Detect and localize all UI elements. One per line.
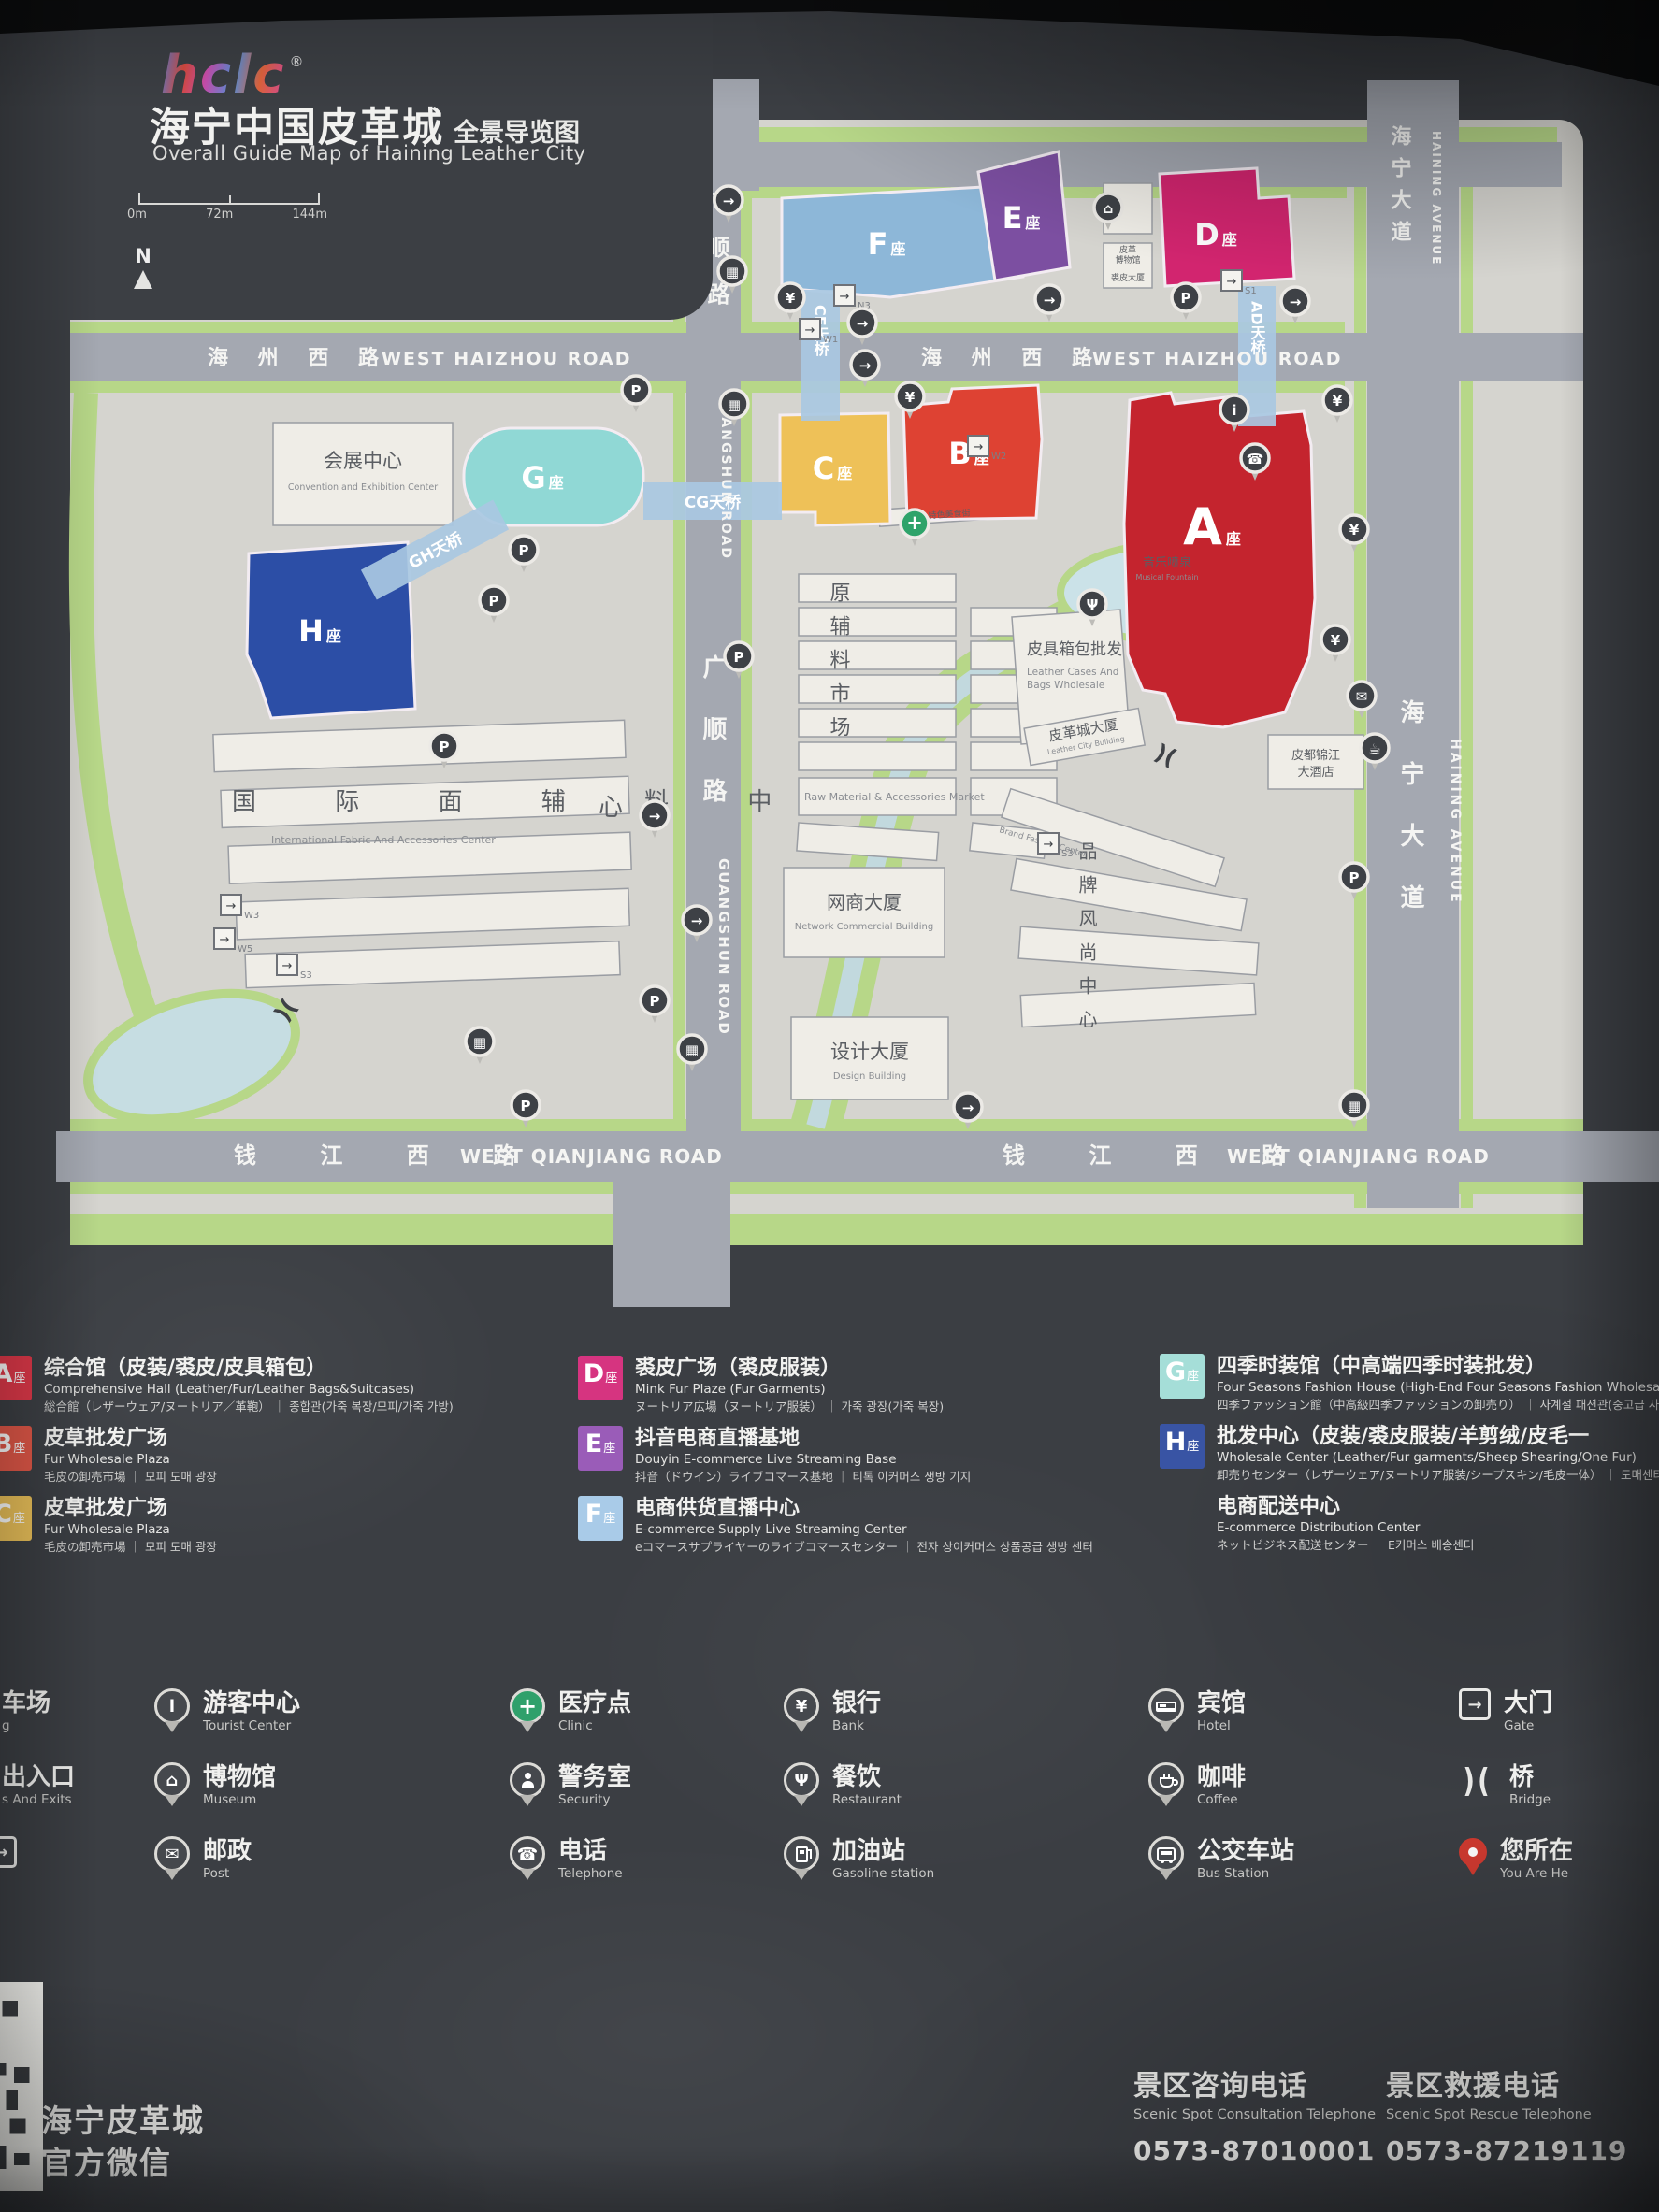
legend-building-suffix: 座 xyxy=(603,1438,615,1456)
svg-text:→: → xyxy=(857,315,869,332)
svg-text:→: → xyxy=(859,357,872,374)
legend-title-jp-kr: 抖音（ドウイン）ライブコマース基地 ｜ 티톡 이커머스 생방 기지 xyxy=(635,1469,971,1486)
legend-column-1: A座 综合馆（皮装/裘皮/皮具箱包） Comprehensive Hall (L… xyxy=(0,1356,660,1566)
facility-label-zh: 咖啡 xyxy=(1197,1763,1246,1791)
facility-item: 加油站 Gasoline station xyxy=(784,1836,934,1885)
legend-building-suffix: 座 xyxy=(603,1508,615,1526)
north-label: N xyxy=(135,245,151,267)
legend-building-letter: C xyxy=(0,1501,12,1529)
facility-label-en: Museum xyxy=(203,1791,276,1808)
svg-text:大酒店: 大酒店 xyxy=(1297,766,1334,780)
restaurant-pin-icon: Ψ xyxy=(784,1762,819,1798)
scale-tick: 72m xyxy=(206,208,233,222)
legend-building-square: C座 xyxy=(0,1496,32,1541)
legend-title-en: E-commerce Supply Live Streaming Center xyxy=(635,1521,1093,1539)
svg-text:▦: ▦ xyxy=(1348,1098,1361,1114)
legend-title-zh: 皮草批发广场 xyxy=(44,1496,217,1521)
facility-item: → xyxy=(2,1836,75,1885)
facility-label-en: Bridge xyxy=(1509,1791,1551,1808)
svg-text:Ψ: Ψ xyxy=(1087,596,1099,613)
svg-text:→: → xyxy=(723,193,735,209)
svg-text:→: → xyxy=(691,912,703,929)
svg-text:▦: ▦ xyxy=(728,396,741,413)
gas-pin-icon xyxy=(784,1836,819,1872)
building-C xyxy=(780,413,890,525)
facility-label-zh: 您所在 xyxy=(1500,1837,1573,1865)
rescue-phone-block: 景区救援电话 Scenic Spot Rescue Telephone 0573… xyxy=(1386,2062,1659,2166)
svg-text:→: → xyxy=(805,323,815,338)
facility-label-en: Gasoline station xyxy=(832,1865,934,1882)
svg-text:Bags Wholesale: Bags Wholesale xyxy=(1027,680,1104,691)
guide-map-sign: F座 E座 D座 C座 B座 A座 G座 H座 CF天桥 AD天桥 CG天桥 G… xyxy=(0,0,1659,2212)
legend-building-square: D座 xyxy=(578,1356,623,1400)
legend-building-letter: D xyxy=(584,1360,604,1388)
facility-item: 出入口 s And Exits xyxy=(2,1762,75,1811)
facility-label-zh: 博物馆 xyxy=(203,1763,276,1791)
svg-text:→: → xyxy=(1290,294,1302,310)
svg-text:→: → xyxy=(840,290,850,304)
north-arrow: N xyxy=(131,245,155,289)
svg-text:W1: W1 xyxy=(823,335,838,345)
gate-icon: → xyxy=(1459,1688,1491,1720)
svg-text:网商大厦: 网商大厦 xyxy=(827,891,902,913)
svg-text:→: → xyxy=(1044,838,1054,852)
legend-title-en: Comprehensive Hall (Leather/Fur/Leather … xyxy=(44,1381,454,1399)
svg-text:会展中心: 会展中心 xyxy=(324,450,402,472)
facility-column-1: i 游客中心 Tourist Center ⌂ 博物馆 Museum ✉ 邮政 … xyxy=(154,1688,300,1910)
svg-text:皮都锦江: 皮都锦江 xyxy=(1291,749,1340,763)
legend-entry: B座 皮草批发广场 Fur Wholesale Plaza 毛皮の卸売市場 ｜ … xyxy=(0,1426,660,1486)
facility-label-zh: 餐饮 xyxy=(832,1763,902,1791)
svg-text:P: P xyxy=(1349,869,1360,886)
museum-pin-icon: ⌂ xyxy=(154,1762,190,1798)
legend-entry: 电商配送中心 E-commerce Distribution Center ネッ… xyxy=(1160,1494,1659,1554)
facility-label-en: Hotel xyxy=(1197,1717,1246,1734)
legend-building-square: B座 xyxy=(0,1426,32,1471)
legend-title-en: Fur Wholesale Plaza xyxy=(44,1451,217,1469)
legend-building-suffix: 座 xyxy=(605,1368,617,1386)
legend-title-jp-kr: ネットビジネス配送センター ｜ E커머스 배송센터 xyxy=(1217,1537,1474,1554)
facility-label-en: s And Exits xyxy=(2,1791,75,1808)
svg-text:皮革: 皮革 xyxy=(1119,244,1136,255)
legend-building-suffix: 座 xyxy=(13,1368,25,1386)
facility-label-zh: 加油站 xyxy=(832,1837,934,1865)
svg-text:WEST QIANJIANG ROAD: WEST QIANJIANG ROAD xyxy=(1227,1145,1490,1168)
legend-building-suffix: 座 xyxy=(13,1438,25,1456)
svg-text:原辅料市场: 原辅料市场 xyxy=(827,582,851,750)
legend-building-square: G座 xyxy=(1160,1354,1205,1399)
facility-item: 您所在 You Are He xyxy=(1459,1836,1573,1885)
svg-text:▦: ▦ xyxy=(473,1034,486,1051)
svg-text:设计大厦: 设计大厦 xyxy=(830,1041,909,1063)
svg-text:Leather Cases And: Leather Cases And xyxy=(1027,667,1118,678)
facility-item: i 游客中心 Tourist Center xyxy=(154,1688,300,1737)
svg-text:¥: ¥ xyxy=(905,389,916,406)
facility-label-zh: 警务室 xyxy=(558,1763,631,1791)
svg-text:P: P xyxy=(440,739,450,755)
legend-building-letter: G xyxy=(1165,1358,1186,1386)
svg-text:心: 心 xyxy=(599,794,623,822)
svg-text:品牌风尚中心: 品牌风尚中心 xyxy=(1075,841,1098,1043)
scale-tick: 144m xyxy=(293,208,327,222)
svg-text:GUANGSHUN ROAD: GUANGSHUN ROAD xyxy=(715,858,732,1036)
legend-building-letter: B xyxy=(0,1430,12,1458)
svg-text:Convention and Exhibition Cent: Convention and Exhibition Center xyxy=(288,482,438,493)
svg-text:P: P xyxy=(489,593,499,610)
clinic-pin-icon: + xyxy=(510,1688,545,1724)
facility-item: → 大门 Gate xyxy=(1459,1688,1573,1737)
svg-text:WEST HAIZHOU ROAD: WEST HAIZHOU ROAD xyxy=(382,349,632,369)
svg-text:☎: ☎ xyxy=(1247,451,1264,467)
legend-building-letter: A xyxy=(0,1360,12,1388)
phone-pin-icon: ☎ xyxy=(510,1836,545,1872)
svg-text:i: i xyxy=(1232,402,1236,419)
facility-label-zh: 桥 xyxy=(1509,1763,1551,1791)
facility-column-left-cut: 车场 g 出入口 s And Exits → xyxy=(2,1688,75,1910)
registered-mark: ® xyxy=(289,53,303,70)
facility-column-4: 宾馆 Hotel 咖啡 Coffee 公交车站 Bus Station xyxy=(1148,1688,1294,1910)
you-are-here-pin-icon xyxy=(1459,1838,1487,1866)
hotel-pin-icon xyxy=(1148,1688,1184,1724)
facility-item: + 医疗点 Clinic xyxy=(510,1688,631,1737)
legend-title-jp-kr: 毛皮の卸売市場 ｜ 모피 도매 광장 xyxy=(44,1539,217,1556)
legend-building-letter: E xyxy=(585,1430,602,1458)
legend-title-zh: 批发中心（皮装/裘皮服装/羊剪绒/皮毛一 xyxy=(1217,1424,1659,1449)
svg-text:→: → xyxy=(974,440,984,454)
legend-title-jp-kr: 総合館（レザーウェア/ヌートリア／革鞄） ｜ 종합관(가죽 복장/모피/가죽 가… xyxy=(44,1399,454,1415)
legend-title-zh: 皮草批发广场 xyxy=(44,1426,217,1451)
facility-item: 宾馆 Hotel xyxy=(1148,1688,1294,1737)
svg-text:WEST HAIZHOU ROAD: WEST HAIZHOU ROAD xyxy=(1092,349,1343,369)
legend-building-suffix: 座 xyxy=(1187,1436,1199,1454)
svg-text:S1: S1 xyxy=(1245,286,1257,296)
building-E xyxy=(978,151,1070,280)
svg-text:W3: W3 xyxy=(244,911,259,921)
legend-title-en: Fur Wholesale Plaza xyxy=(44,1521,217,1539)
svg-text:AD天桥: AD天桥 xyxy=(1248,301,1266,356)
facility-item: )( 桥 Bridge xyxy=(1459,1762,1573,1811)
svg-text:W5: W5 xyxy=(238,944,252,955)
facility-label-en: g xyxy=(2,1717,50,1734)
facility-item: ☎ 电话 Telephone xyxy=(510,1836,631,1885)
facility-column-right-cut: → 大门 Gate )( 桥 Bridge 您所在 You Are He xyxy=(1459,1688,1573,1910)
facility-item: ⌂ 博物馆 Museum xyxy=(154,1762,300,1811)
svg-text:P: P xyxy=(631,382,642,399)
scale-tick: 0m xyxy=(127,208,147,222)
facility-item: ¥ 银行 Bank xyxy=(784,1688,934,1737)
facility-label-en: You Are He xyxy=(1500,1865,1573,1882)
info-pin-icon: i xyxy=(154,1688,190,1724)
legend-title-zh: 综合馆（皮装/裘皮/皮具箱包） xyxy=(44,1356,454,1381)
bus-pin-icon xyxy=(1148,1836,1184,1872)
rescue-phone-number: 0573-87219119 xyxy=(1386,2135,1659,2166)
facility-label-en: Gate xyxy=(1504,1717,1552,1734)
legend-title-zh: 抖音电商直播基地 xyxy=(635,1426,971,1451)
facility-label-zh: 电话 xyxy=(558,1837,623,1865)
legend-building-suffix: 座 xyxy=(13,1508,25,1526)
legend-building-suffix: 座 xyxy=(1187,1366,1199,1384)
facility-item: 警务室 Security xyxy=(510,1762,631,1811)
wechat-caption: 海宁皮革城 官方微信 xyxy=(41,2100,205,2184)
svg-text:✉: ✉ xyxy=(1356,688,1368,705)
legend-entry: D座 裘皮广场（裘皮服装） Mink Fur Plaze (Fur Garmen… xyxy=(578,1356,1251,1415)
svg-text:HAINING AVENUE: HAINING AVENUE xyxy=(1430,131,1443,266)
facility-column-3: ¥ 银行 Bank Ψ 餐饮 Restaurant 加油站 Gasoline s… xyxy=(784,1688,934,1910)
legend-entry: F座 电商供货直播中心 E-commerce Supply Live Strea… xyxy=(578,1496,1251,1556)
facility-label-en: Bus Station xyxy=(1197,1865,1294,1882)
svg-text:P: P xyxy=(521,1098,531,1114)
wechat-caption-line2: 官方微信 xyxy=(41,2145,172,2181)
facility-column-2: + 医疗点 Clinic 警务室 Security ☎ 电话 Telephone xyxy=(510,1688,631,1910)
legend-building-letter: F xyxy=(585,1501,602,1529)
svg-text:¥: ¥ xyxy=(1331,632,1341,649)
svg-text:▦: ▦ xyxy=(685,1041,699,1058)
legend-title-jp-kr: 毛皮の卸売市場 ｜ 모피 도매 광장 xyxy=(44,1469,217,1486)
coffee-pin-icon xyxy=(1148,1762,1184,1798)
wechat-qr-code xyxy=(0,1982,43,2191)
legend-building-square: E座 xyxy=(578,1426,623,1471)
legend-title-zh: 电商配送中心 xyxy=(1217,1494,1474,1519)
north-triangle-icon xyxy=(134,270,152,289)
legend-entry: C座 皮草批发广场 Fur Wholesale Plaza 毛皮の卸売市場 ｜ … xyxy=(0,1496,660,1556)
legend-column-2: D座 裘皮广场（裘皮服装） Mink Fur Plaze (Fur Garmen… xyxy=(578,1356,1251,1566)
svg-text:S3: S3 xyxy=(1061,849,1074,859)
facility-item: 咖啡 Coffee xyxy=(1148,1762,1294,1811)
svg-text:→: → xyxy=(226,899,237,913)
legend-entry: A座 综合馆（皮装/裘皮/皮具箱包） Comprehensive Hall (L… xyxy=(0,1356,660,1415)
post-pin-icon: ✉ xyxy=(154,1836,190,1872)
svg-text:Raw Material & Accessories Mar: Raw Material & Accessories Market xyxy=(804,791,985,803)
legend-entry: H座 批发中心（皮装/裘皮服装/羊剪绒/皮毛一 Wholesale Center… xyxy=(1160,1424,1659,1484)
scale-line xyxy=(138,193,320,205)
svg-text:Design Building: Design Building xyxy=(833,1071,906,1082)
facility-label-zh: 游客中心 xyxy=(203,1689,300,1717)
legend-title-jp-kr: eコマースサプライヤーのライブコマースセンター ｜ 전자 상이커머스 상품공급 … xyxy=(635,1539,1093,1556)
facility-item: ✉ 邮政 Post xyxy=(154,1836,300,1885)
legend-title-en: Mink Fur Plaze (Fur Garments) xyxy=(635,1381,944,1399)
rescue-phone-subtitle: Scenic Spot Rescue Telephone xyxy=(1386,2107,1659,2122)
svg-text:广顺路: 广顺路 xyxy=(699,654,727,840)
facility-label-zh: 公交车站 xyxy=(1197,1837,1294,1865)
legend-title-zh: 电商供货直播中心 xyxy=(635,1496,1093,1521)
legend-title-jp-kr: 卸売りセンター（レザーウェア/ヌートリア服装/シープスキン/毛皮一体） ｜ 도매… xyxy=(1217,1467,1659,1484)
svg-text:P: P xyxy=(734,649,744,666)
svg-text:裘皮大厦: 裘皮大厦 xyxy=(1111,272,1145,283)
title-english: Overall Guide Map of Haining Leather Cit… xyxy=(152,142,585,165)
legend-entry: G座 四季时装馆（中高端四季时装批发） Four Seasons Fashion… xyxy=(1160,1354,1659,1414)
map-scale-bar: 0m 72m 144m xyxy=(138,193,335,222)
svg-text:→: → xyxy=(1227,275,1237,289)
svg-text:¥: ¥ xyxy=(1349,522,1360,539)
svg-text:P: P xyxy=(519,542,529,559)
legend-building-square: H座 xyxy=(1160,1424,1205,1469)
svg-text:Musical Fountain: Musical Fountain xyxy=(1135,573,1198,582)
legend-building-square: F座 xyxy=(578,1496,623,1541)
facility-label-en: Security xyxy=(558,1791,631,1808)
legend-building-square: A座 xyxy=(0,1356,32,1400)
facility-label-en: Telephone xyxy=(558,1865,623,1882)
svg-text:HAINING AVENUE: HAINING AVENUE xyxy=(1448,739,1463,905)
svg-text:¥: ¥ xyxy=(1333,393,1343,409)
svg-text:¥: ¥ xyxy=(786,290,796,307)
facility-item: Ψ 餐饮 Restaurant xyxy=(784,1762,934,1811)
svg-text:⌂: ⌂ xyxy=(1104,200,1114,217)
security-pin-icon xyxy=(510,1762,545,1798)
svg-text:S3: S3 xyxy=(300,970,312,981)
facility-label-zh: 邮政 xyxy=(203,1837,252,1865)
legend-title-en: Wholesale Center (Leather/Fur garments/S… xyxy=(1217,1449,1659,1467)
svg-text:→: → xyxy=(282,959,293,973)
svg-text:海宁大道: 海宁大道 xyxy=(1388,124,1412,252)
facility-label-zh: 大门 xyxy=(1504,1689,1552,1717)
svg-text:→: → xyxy=(220,933,230,947)
legend-title-jp-kr: ヌートリア広場（ヌートリア服装） ｜ 가죽 광장(가죽 복장) xyxy=(635,1399,944,1415)
svg-text:P: P xyxy=(1181,290,1191,307)
rescue-phone-title: 景区救援电话 xyxy=(1386,2062,1659,2104)
svg-text:→: → xyxy=(1044,292,1056,309)
legend-building-letter: H xyxy=(1165,1429,1187,1457)
facility-label-zh: 出入口 xyxy=(2,1763,75,1791)
facility-label-zh: 宾馆 xyxy=(1197,1689,1246,1717)
legend-column-3: G座 四季时装馆（中高端四季时装批发） Four Seasons Fashion… xyxy=(1160,1354,1659,1564)
legend-title-zh: 裘皮广场（裘皮服装） xyxy=(635,1356,944,1381)
svg-text:皮具箱包批发: 皮具箱包批发 xyxy=(1027,640,1122,659)
facility-label-en: Restaurant xyxy=(832,1791,902,1808)
bank-pin-icon: ¥ xyxy=(784,1688,819,1724)
svg-text:海 州 西 路: 海 州 西 路 xyxy=(921,346,1104,370)
svg-text:博物馆: 博物馆 xyxy=(1115,254,1140,266)
facility-label-zh: 银行 xyxy=(832,1689,881,1717)
qr-pattern xyxy=(0,1988,37,2186)
facility-label-en: Tourist Center xyxy=(203,1717,300,1734)
wechat-caption-line1: 海宁皮革城 xyxy=(41,2103,205,2139)
svg-text:P: P xyxy=(650,993,660,1010)
svg-text:+: + xyxy=(906,511,923,534)
facility-label-en: Coffee xyxy=(1197,1791,1246,1808)
bridge-icon: )( xyxy=(1459,1758,1496,1804)
svg-text:→: → xyxy=(962,1099,974,1116)
svg-text:海宁大道: 海宁大道 xyxy=(1396,699,1424,946)
legend-title-en: Four Seasons Fashion House (High-End Fou… xyxy=(1217,1379,1659,1397)
facility-label-en: Bank xyxy=(832,1717,881,1734)
facility-item: 公交车站 Bus Station xyxy=(1148,1836,1294,1885)
svg-text:International Fabric And Acces: International Fabric And Accessories Cen… xyxy=(271,834,496,846)
facility-label-zh: 医疗点 xyxy=(558,1689,631,1717)
legend-title-jp-kr: 四季ファッション館（中高級四季ファッションの卸売り） ｜ 사계절 패션관(중고급… xyxy=(1217,1397,1659,1414)
svg-text:Network Commercial Building: Network Commercial Building xyxy=(795,922,934,932)
legend-title-en: Douyin E-commerce Live Streaming Base xyxy=(635,1451,971,1469)
svg-text:→: → xyxy=(649,808,661,825)
facility-label-en: Clinic xyxy=(558,1717,631,1734)
svg-text:▦: ▦ xyxy=(726,264,739,280)
svg-text:音乐喷泉: 音乐喷泉 xyxy=(1143,555,1191,570)
facility-item: 车场 g xyxy=(2,1688,75,1737)
legend-title-zh: 四季时装馆（中高端四季时装批发） xyxy=(1217,1354,1659,1379)
legend-entry: E座 抖音电商直播基地 Douyin E-commerce Live Strea… xyxy=(578,1426,1251,1486)
facility-label-en: Post xyxy=(203,1865,252,1882)
svg-text:W2: W2 xyxy=(991,452,1006,462)
facility-label-zh: 车场 xyxy=(2,1689,50,1717)
svg-text:海 州 西 路: 海 州 西 路 xyxy=(208,346,390,370)
svg-text:WEST QIANJIANG ROAD: WEST QIANJIANG ROAD xyxy=(460,1145,723,1168)
legend-title-en: E-commerce Distribution Center xyxy=(1217,1519,1474,1537)
svg-text:☕: ☕ xyxy=(1368,740,1380,757)
gate-icon: → xyxy=(0,1836,17,1868)
